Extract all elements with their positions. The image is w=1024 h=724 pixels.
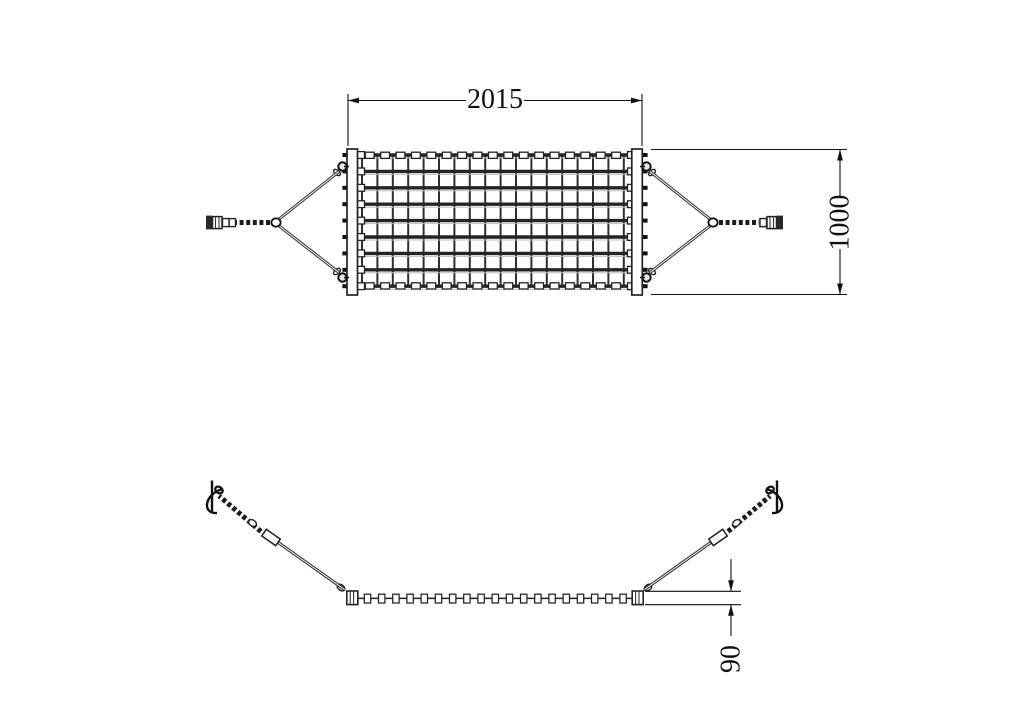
dimension-width-value: 1000 — [825, 195, 856, 251]
frame-bar-right — [632, 149, 643, 295]
elevation-view: 90 — [207, 481, 782, 674]
dimension-length: 2015 — [348, 84, 642, 146]
dimension-thickness-value: 90 — [716, 645, 747, 673]
plan-view: 2015 1000 — [206, 84, 856, 295]
technical-drawing: 2015 1000 90 — [0, 0, 1024, 724]
rigging-left — [206, 162, 349, 281]
net-mesh — [342, 152, 647, 290]
suspension-left — [207, 481, 346, 593]
net-edge — [347, 591, 643, 605]
suspension-right — [643, 481, 782, 593]
dimension-length-value: 2015 — [467, 84, 523, 115]
frame-bar-left — [347, 149, 358, 295]
rigging-right — [640, 162, 783, 281]
dimension-thickness: 90 — [645, 559, 747, 673]
